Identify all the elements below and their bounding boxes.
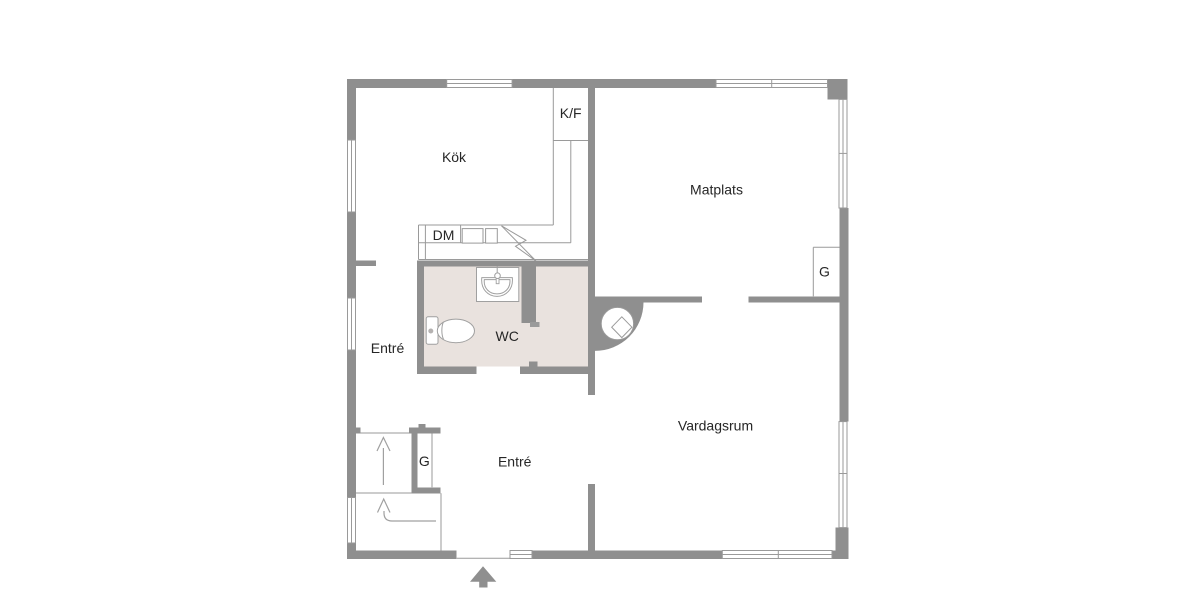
svg-text:Entré: Entré	[498, 454, 532, 470]
svg-text:Vardagsrum: Vardagsrum	[678, 418, 753, 434]
svg-text:DM: DM	[433, 227, 455, 243]
svg-text:G: G	[819, 264, 830, 280]
svg-text:Matplats: Matplats	[690, 182, 743, 198]
svg-text:WC: WC	[496, 328, 519, 344]
svg-text:K/F: K/F	[560, 105, 582, 121]
svg-text:Entré: Entré	[371, 340, 405, 356]
svg-text:G: G	[419, 453, 430, 469]
svg-text:Kök: Kök	[442, 149, 467, 165]
